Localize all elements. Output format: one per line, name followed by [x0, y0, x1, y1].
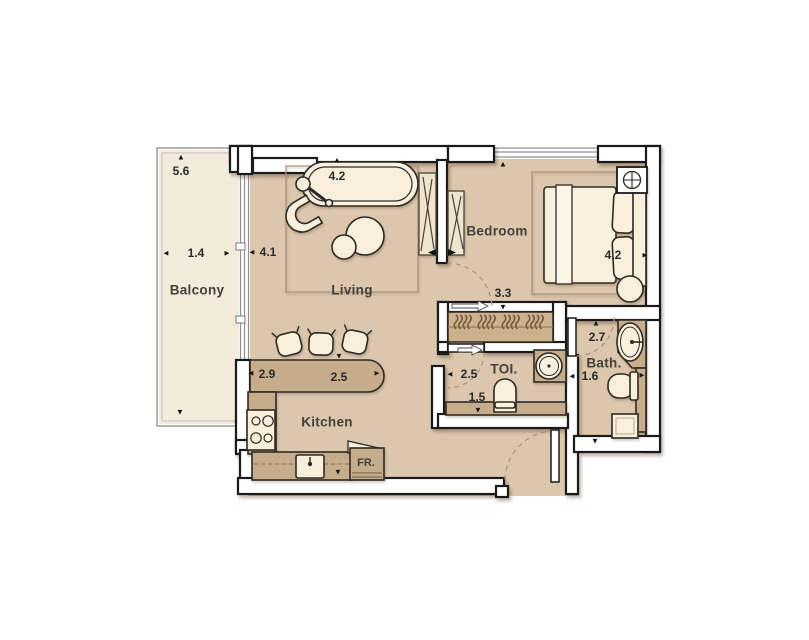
dim-arrow-left: ◄: [568, 372, 576, 381]
dim-kitchen-width: 2.9: [259, 367, 276, 381]
dim-arrow-down: ▼: [591, 437, 599, 446]
dim-toilet-length: 1.5: [469, 390, 486, 404]
dim-arrow-down: ▼: [334, 468, 342, 477]
dim-arrow-down: ▼: [474, 406, 482, 415]
room-label-bedroom: Bedroom: [466, 224, 527, 239]
dim-bath-width: 1.6: [582, 369, 599, 383]
dim-arrow-right: ►: [638, 371, 646, 380]
dim-balcony-width: 1.4: [188, 246, 205, 260]
room-label-balcony: Balcony: [170, 283, 225, 298]
dim-arrow-right: ►: [641, 251, 649, 260]
labels-layer: Balcony Living Bedroom Kitchen TOI. Bath…: [0, 0, 809, 640]
dim-bedroom-length: 4.2: [605, 248, 622, 262]
floor-plan-canvas: Balcony Living Bedroom Kitchen TOI. Bath…: [0, 0, 809, 640]
dim-kitchen-bar-length: 2.5: [331, 370, 348, 384]
room-label-toilet: TOI.: [490, 362, 517, 377]
dim-arrow-up: ▲: [592, 319, 600, 328]
dim-arrow-left: ◄: [162, 249, 170, 258]
dim-arrow-down: ▼: [335, 352, 343, 361]
room-label-kitchen: Kitchen: [301, 415, 353, 430]
dim-arrow-up: ▲: [499, 160, 507, 169]
dim-balcony-length: 5.6: [173, 164, 190, 178]
dim-arrow-left: ◄: [446, 370, 454, 379]
dim-arrow-up: ▲: [177, 153, 185, 162]
dim-arrow-left: ◄: [247, 369, 255, 378]
dim-arrow-up: ▲: [333, 156, 341, 165]
dim-arrow-right: ►: [373, 369, 381, 378]
dim-living-length: 4.2: [329, 169, 346, 183]
dim-arrow-right: ►: [223, 249, 231, 258]
fridge-label: FR.: [357, 457, 375, 469]
dim-arrow-down: ▼: [499, 303, 507, 312]
dim-living-width: 4.1: [260, 245, 277, 259]
dim-corridor-width: 3.3: [495, 286, 512, 300]
dim-bath-length: 2.7: [589, 330, 606, 344]
dim-arrow-down: ▼: [176, 408, 184, 417]
dim-toilet-width: 2.5: [461, 367, 478, 381]
room-label-living: Living: [331, 283, 373, 298]
dim-arrow-left: ◄: [248, 248, 256, 257]
